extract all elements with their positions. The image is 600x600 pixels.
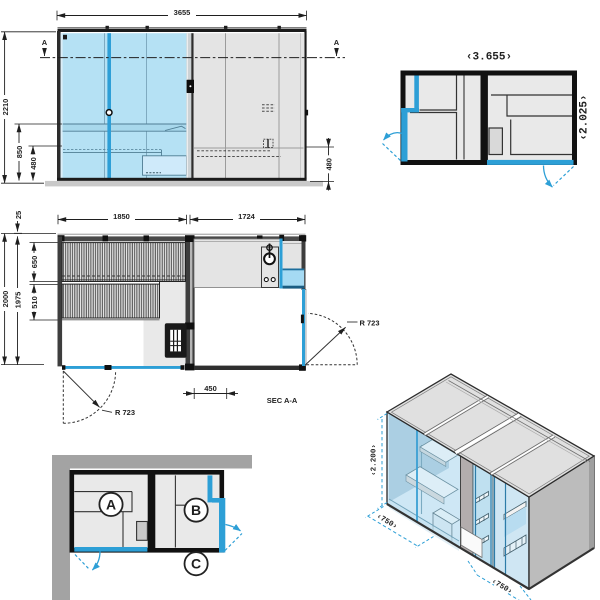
svg-text:SEC A-A: SEC A-A — [267, 396, 298, 405]
svg-text:850: 850 — [15, 146, 24, 159]
svg-text:2210: 2210 — [1, 99, 10, 116]
svg-text:25: 25 — [14, 211, 23, 219]
svg-text:‹2.025›: ‹2.025› — [579, 94, 591, 140]
svg-text:480: 480 — [325, 158, 334, 171]
svg-text:‹2.200›: ‹2.200› — [371, 444, 379, 476]
svg-text:1850: 1850 — [113, 212, 130, 221]
svg-text:480: 480 — [29, 157, 38, 170]
svg-text:1724: 1724 — [238, 212, 256, 221]
svg-text:B: B — [191, 502, 201, 518]
svg-text:‹3.655›: ‹3.655› — [466, 52, 512, 64]
svg-text:A: A — [106, 496, 116, 512]
svg-text:450: 450 — [204, 384, 217, 393]
svg-text:2000: 2000 — [1, 291, 10, 308]
svg-text:R 723: R 723 — [360, 318, 380, 327]
svg-text:1975: 1975 — [14, 292, 23, 309]
svg-text:3655: 3655 — [174, 8, 191, 17]
svg-text:A: A — [334, 38, 340, 47]
svg-text:510: 510 — [30, 296, 39, 309]
svg-text:650: 650 — [30, 256, 39, 269]
svg-text:R 723: R 723 — [115, 408, 135, 417]
svg-text:A: A — [42, 38, 48, 47]
svg-text:C: C — [191, 556, 201, 572]
